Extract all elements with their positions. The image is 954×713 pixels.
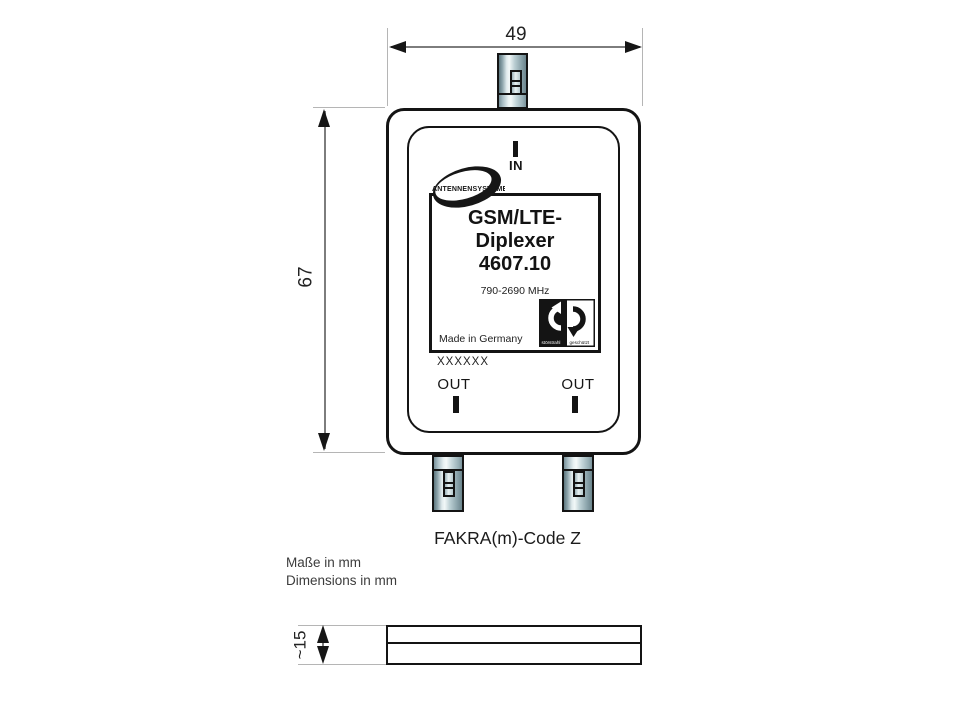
extension-line (313, 107, 385, 108)
technical-drawing: 49 67 IN GSM/LTE- Diplexer 4607.10 790-2… (0, 0, 954, 713)
emc-text-left: störstrahl (542, 340, 561, 345)
connector-flange (497, 93, 528, 109)
serial-placeholder: XXXXXX (437, 356, 489, 368)
arrowhead-right-icon (625, 41, 642, 53)
product-label: GSM/LTE- Diplexer 4607.10 790-2690 MHz M… (429, 193, 601, 353)
emc-shielding-icon: störstrahl geschützt (539, 299, 595, 347)
port-in-tick (513, 141, 518, 157)
dimension-height-value: 67 (287, 257, 327, 297)
connector-pin (510, 70, 522, 95)
arrowhead-up-icon (318, 109, 330, 127)
product-model: 4607.10 (432, 253, 598, 276)
product-title-line2: Diplexer (432, 230, 598, 253)
extension-line (313, 452, 385, 453)
frequency-range: 790-2690 MHz (432, 285, 598, 297)
brand-logo-icon: ANTENNENSYSTEME (429, 162, 505, 212)
arrowhead-left-icon (389, 41, 406, 53)
product-title: GSM/LTE- Diplexer 4607.10 (432, 207, 598, 276)
side-view-seam (388, 642, 640, 644)
connector-pin (573, 471, 585, 497)
emc-text-right: geschützt (570, 340, 590, 345)
origin-text: Made in Germany (439, 333, 522, 345)
connector-pin (443, 471, 455, 497)
extension-line (642, 28, 643, 106)
port-out-left-label: OUT (432, 376, 476, 393)
port-out-right-label: OUT (556, 376, 600, 393)
dimension-width-value: 49 (486, 24, 546, 46)
port-out-left-tick (453, 396, 459, 413)
extension-line (387, 28, 388, 106)
dimension-line (391, 46, 640, 48)
units-note-en: Dimensions in mm (286, 573, 397, 588)
dimension-depth-value: ~15 (281, 623, 319, 667)
connector-type-note: FAKRA(m)-Code Z (397, 528, 618, 549)
port-out-right-tick (572, 396, 578, 413)
side-view (386, 625, 642, 665)
units-note-de: Maße in mm (286, 555, 361, 570)
brand-text: ANTENNENSYSTEME (432, 186, 505, 193)
arrowhead-down-icon (318, 433, 330, 451)
